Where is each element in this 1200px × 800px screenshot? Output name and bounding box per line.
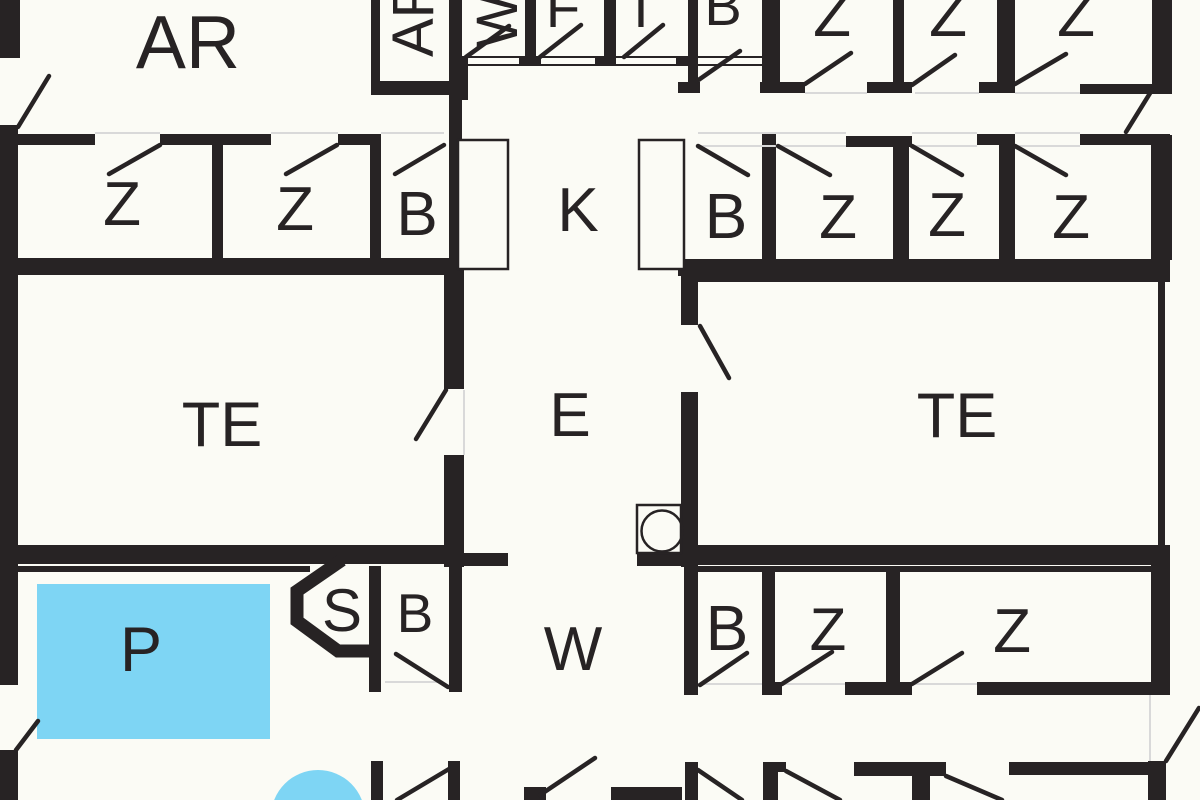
svg-text:B: B [706,592,749,664]
svg-text:B: B [397,582,434,644]
svg-text:AR: AR [381,0,446,57]
svg-text:Z: Z [276,175,314,244]
svg-text:W: W [465,0,530,48]
svg-text:Z: Z [819,183,857,252]
svg-text:AR: AR [136,0,240,84]
svg-text:S: S [322,577,362,644]
svg-text:K: K [557,176,598,245]
svg-text:Z: Z [103,170,141,239]
svg-text:B: B [705,180,748,252]
svg-text:Z: Z [1057,0,1095,50]
svg-text:E: E [549,381,590,450]
svg-text:Z: Z [1052,183,1090,252]
svg-text:B: B [396,180,437,249]
svg-text:Z: Z [813,0,851,50]
svg-text:Z: Z [928,181,966,250]
svg-text:T: T [624,0,658,39]
svg-text:TE: TE [917,381,998,451]
svg-text:Z: Z [929,0,967,50]
svg-text:Z: Z [810,596,847,663]
svg-text:F: F [546,0,580,39]
svg-text:P: P [120,615,162,685]
svg-text:W: W [544,615,603,684]
svg-text:B: B [704,0,741,37]
svg-text:Z: Z [993,597,1031,666]
svg-text:TE: TE [182,390,263,460]
